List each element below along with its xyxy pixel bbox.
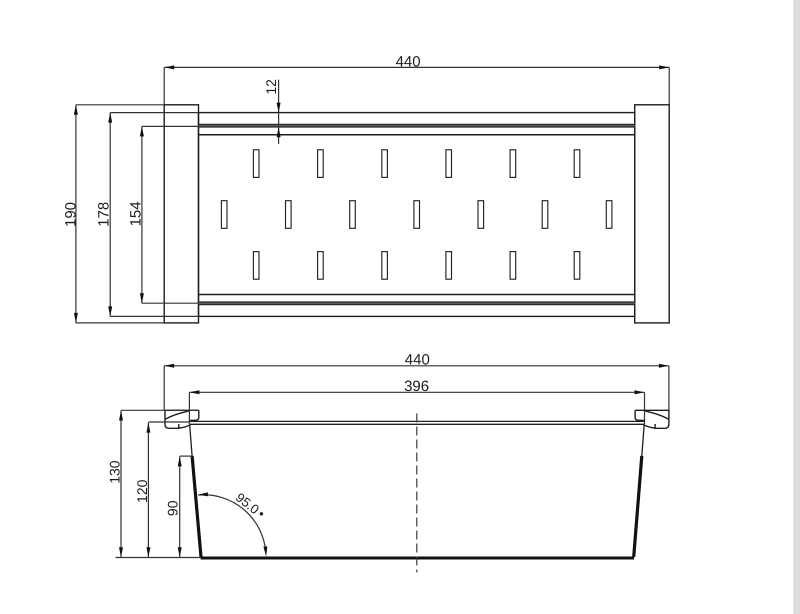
- svg-text:178: 178: [96, 202, 113, 227]
- svg-text:130: 130: [106, 460, 122, 484]
- svg-text:440: 440: [396, 53, 421, 70]
- svg-text:154: 154: [128, 201, 145, 226]
- svg-text:90: 90: [165, 500, 181, 516]
- svg-text:120: 120: [134, 479, 150, 503]
- svg-text:190: 190: [62, 202, 79, 227]
- svg-text:396: 396: [404, 378, 429, 395]
- svg-text:440: 440: [405, 352, 430, 369]
- svg-text:12: 12: [263, 79, 279, 95]
